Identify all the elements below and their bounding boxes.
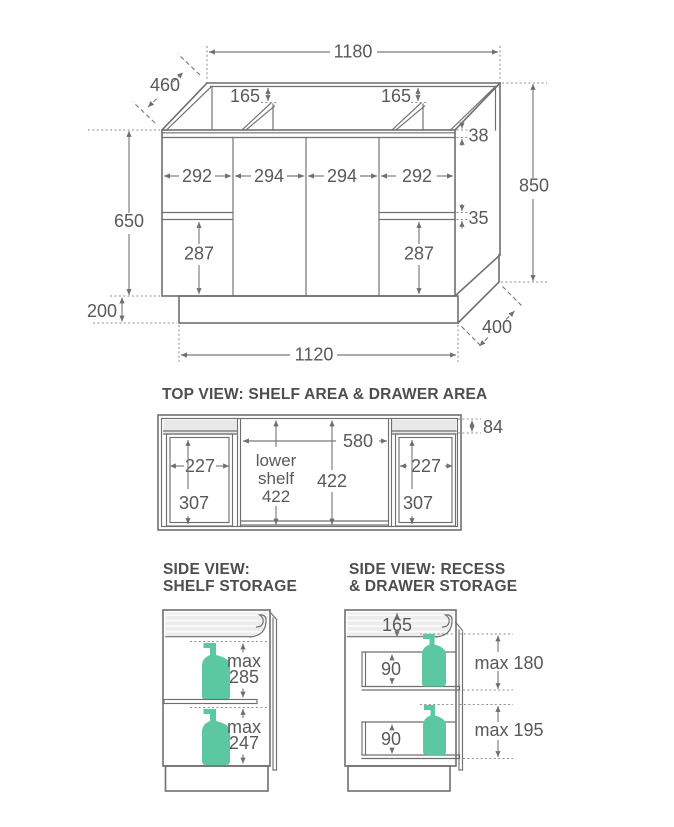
benchtop-section-graphic: [166, 613, 269, 637]
dim-shelf-width-label: 580: [343, 431, 373, 451]
dim-recess-left-label: 165: [230, 86, 260, 106]
dim-depth-label: 460: [150, 75, 180, 95]
soap-bottle-icon: [423, 705, 446, 755]
dim-lower-drawer-inner: 90: [381, 725, 401, 754]
dim-drawer-front-left-label: 287: [184, 244, 214, 264]
shelf-graphic: [164, 700, 257, 704]
dim-depth: 460: [133, 54, 200, 123]
dim-kick-width: 1120: [179, 325, 458, 365]
lower-shelf-label-value: 422: [262, 487, 290, 506]
dim-drawer-front-left: 287: [184, 222, 214, 294]
side-view-shelf-title-line2: SHELF STORAGE: [163, 578, 297, 595]
side-view-drawer-title-line1: SIDE VIEW: RECESS: [349, 561, 505, 578]
kickboard-graphic: [166, 766, 269, 791]
lower-shelf-label-group: lower shelf 422: [256, 421, 297, 525]
lower-max-value: 247: [229, 733, 259, 753]
dim-upper-drawer-inner-label: 90: [381, 659, 401, 679]
dim-door-width-1: 292: [182, 166, 212, 186]
side-view-shelf: SIDE VIEW: SHELF STORAGE max 285 max: [163, 561, 297, 791]
dim-right-drawer-width-label: 227: [411, 456, 441, 476]
lower-shelf-label-line2: shelf: [258, 469, 294, 488]
dim-drawer-gap-label: 35: [469, 208, 489, 228]
dim-shelf-depth-label: 422: [317, 471, 347, 491]
kickboard-graphic: [348, 766, 450, 791]
dim-recess-left: 165: [230, 86, 277, 106]
cabinet-outline-graphic: [162, 83, 500, 323]
dim-drawer-front-right: 287: [404, 222, 434, 294]
dim-top-rail-label: 38: [469, 126, 489, 146]
dim-upper-recess-clearance: max 180: [463, 636, 544, 691]
side-view-drawer: SIDE VIEW: RECESS & DRAWER STORAGE 165: [345, 561, 544, 791]
dim-left-drawer-width-label: 227: [185, 456, 215, 476]
dim-kick-height-label: 200: [87, 301, 117, 321]
dim-kick-width-label: 1120: [295, 345, 334, 365]
upper-max-label: max 180: [474, 653, 543, 673]
dim-kick-height: 200: [87, 298, 177, 324]
vanity-dimension-diagram: 1180 460 165 165 38: [0, 0, 674, 827]
dim-kick-depth: 400: [462, 287, 524, 348]
dim-left-drawer-depth: 307: [179, 440, 209, 524]
soap-bottle-icon: [422, 634, 446, 687]
dim-kick-depth-label: 400: [482, 317, 512, 337]
dim-top-width-label: 1180: [334, 42, 373, 62]
back-strip-left-graphic: [164, 420, 237, 434]
dim-door-widths: 292 294 294 292: [164, 166, 453, 186]
dim-upper-shelf-clearance: max 285: [227, 644, 261, 698]
side-view-drawer-title-line2: & DRAWER STORAGE: [349, 578, 517, 595]
dim-lower-drawer-inner-label: 90: [381, 729, 401, 749]
dim-right-drawer-depth: 307: [403, 440, 433, 524]
dim-left-drawer-width: 227: [170, 456, 229, 476]
soap-bottle-icon: [202, 643, 230, 700]
dim-recess-right: 165: [381, 86, 427, 106]
dim-body-height-label: 650: [114, 211, 144, 231]
dim-back-strip: 84: [458, 417, 503, 437]
dim-left-drawer-depth-label: 307: [179, 493, 209, 513]
dim-door-width-3: 294: [327, 166, 357, 186]
lower-max-label: max 195: [474, 720, 543, 740]
top-view: TOP VIEW: SHELF AREA & DRAWER AREA 84: [158, 386, 503, 530]
dim-total-height-label: 850: [519, 176, 549, 196]
side-view-shelf-title-line1: SIDE VIEW:: [163, 561, 250, 578]
dim-right-drawer-depth-label: 307: [403, 493, 433, 513]
back-strip-right-graphic: [392, 420, 457, 434]
dim-lower-shelf-clearance: max 247: [227, 709, 261, 764]
dim-door-width-2: 294: [254, 166, 284, 186]
dim-recess-height: 165: [382, 613, 412, 637]
dim-door-width-4: 292: [402, 166, 432, 186]
dim-top-width: 1180: [207, 42, 500, 82]
dim-lower-recess-clearance: max 195: [463, 706, 544, 759]
dim-back-strip-label: 84: [483, 417, 503, 437]
dim-shelf-width: 580: [243, 431, 387, 451]
dim-drawer-gap: 35: [457, 204, 489, 229]
vanity-dimension-diagram-page: 1180 460 165 165 38: [0, 0, 674, 827]
dim-total-height: 850: [501, 83, 549, 282]
dim-drawer-front-right-label: 287: [404, 244, 434, 264]
dim-right-drawer-width: 227: [400, 456, 453, 476]
dim-upper-drawer-inner: 90: [381, 655, 401, 685]
dim-body-height: 650: [88, 130, 160, 296]
dim-recess-right-label: 165: [381, 86, 411, 106]
dim-recess-height-label: 165: [382, 615, 412, 635]
top-view-title: TOP VIEW: SHELF AREA & DRAWER AREA: [162, 386, 487, 403]
dim-top-rail: 38: [457, 122, 489, 147]
soap-bottle-icon: [202, 709, 230, 765]
main-view: 1180 460 165 165 38: [87, 42, 549, 365]
upper-max-value: 285: [229, 667, 259, 687]
lower-shelf-label-line1: lower: [256, 451, 297, 470]
